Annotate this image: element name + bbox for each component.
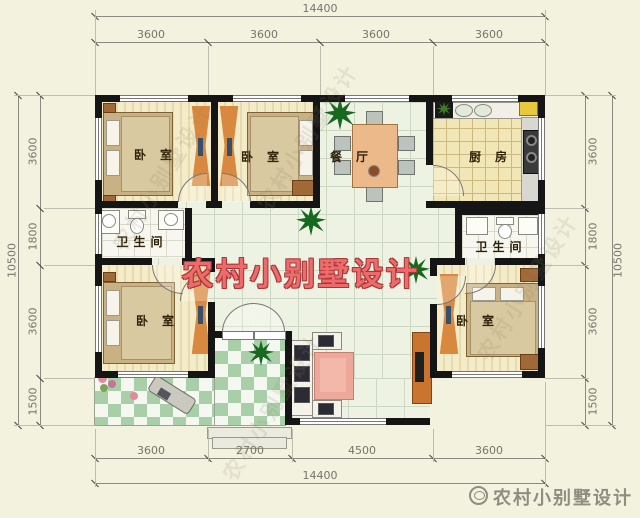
wall-bathL-bottom-a [95, 258, 152, 265]
extension-line [545, 425, 616, 426]
dim-left-total: 10500 [6, 231, 19, 291]
label-kitchen: 厨房 [455, 148, 535, 165]
bed1-pillow-a [106, 120, 120, 146]
dim-bottom-seg-1: 3600 [121, 444, 181, 457]
bed1-nightstand-a [103, 103, 116, 113]
extension-line [433, 429, 434, 462]
label-dining: 餐厅 [316, 148, 396, 165]
dim-top-total: 14400 [290, 2, 350, 15]
window-bed1-left [95, 118, 102, 180]
extension-line [545, 10, 546, 95]
dim-top-seg-3: 3600 [346, 28, 406, 41]
bathL-sink-basin [164, 213, 178, 226]
extension-line [14, 425, 95, 426]
dim-bottom-seg-4: 3600 [459, 444, 519, 457]
french-door-leaves [222, 331, 286, 340]
watermark-center: 农村小别墅设计 [182, 249, 420, 294]
living-rug-inner [320, 358, 346, 392]
wall-kitchen-left-upper [426, 102, 433, 165]
terrace-flower-4 [130, 392, 138, 400]
dim-top-seg-2: 3600 [234, 28, 294, 41]
bathR-cabinet [518, 217, 538, 235]
extension-line [44, 265, 95, 266]
dim-bottom-seg-line [95, 458, 545, 459]
window-living-bottom [300, 418, 386, 425]
dim-bottom-total: 14400 [290, 469, 350, 482]
dim-top-seg-4: 3600 [459, 28, 519, 41]
dim-left-seg-3: 3600 [27, 292, 40, 352]
extension-line [44, 378, 95, 379]
dim-bottom-seg-3: 4500 [332, 444, 392, 457]
wall-bed4-left-b [430, 304, 437, 378]
dining-chair-right-2 [398, 160, 415, 175]
dining-teapot [368, 165, 380, 177]
extension-line [14, 95, 95, 96]
dim-bottom-total-line [95, 483, 545, 484]
wall-bed4-left-a [430, 265, 437, 276]
bed3-nightstand [103, 272, 116, 282]
extension-line [208, 429, 209, 462]
dining-chair-bottom [366, 187, 383, 202]
window-kitchen-top [452, 95, 518, 102]
window-bed3-bottom [118, 371, 188, 378]
dim-top-seg-1: 3600 [121, 28, 181, 41]
dim-right-total: 10500 [612, 231, 625, 291]
extension-line [95, 10, 96, 95]
dining-chair-right-1 [398, 136, 415, 151]
window-bed4-bottom [452, 371, 522, 378]
watermark-footer: 农村小别墅设计 [493, 484, 633, 510]
wall-bathR-top [455, 208, 545, 215]
extension-line [44, 208, 95, 209]
window-kitchen-right [538, 118, 545, 180]
label-bathroom-right: 卫生间 [462, 238, 540, 255]
extension-line [433, 46, 434, 95]
bed3-pillow-a [106, 290, 120, 316]
extension-line [95, 429, 96, 487]
kitchen-sink-2 [474, 104, 492, 117]
extension-line [292, 429, 293, 462]
window-dining-top [345, 95, 409, 102]
tv [415, 352, 424, 382]
stove-burner-1 [526, 135, 537, 146]
dim-left-seg-1: 3600 [27, 122, 40, 182]
wall-bathR-bottom-a [430, 258, 465, 265]
dim-left-seg-line [40, 95, 41, 425]
wall-bed3-right-b [208, 302, 215, 378]
bathR-sink-counter [466, 217, 488, 235]
dim-top-total-line [95, 16, 545, 17]
bed1-pillow-b [106, 150, 120, 176]
sofa-seat-bottom-cushion [318, 403, 334, 415]
bathR-toilet-bowl [498, 224, 512, 239]
window-bed2-top [233, 95, 301, 102]
label-bedroom3: 卧室 [122, 312, 202, 329]
bed3-pillow-b [106, 320, 120, 346]
extension-line [545, 378, 589, 379]
extension-line [545, 95, 616, 96]
wall-kitchen-bottom [426, 201, 545, 208]
kitchen-sink-1 [455, 104, 473, 117]
dim-right-seg-1: 3600 [587, 122, 600, 182]
window-bed3-left [95, 286, 102, 352]
extension-line [545, 208, 589, 209]
floor-plan-canvas: 卧室 卧室 餐厅 厨房 卫生间 卫生间 卧室 卧室 14400 3600 360… [0, 0, 640, 518]
dim-left-seg-2: 1800 [27, 207, 40, 267]
extension-line [208, 46, 209, 95]
terrace-flower-3 [100, 384, 108, 392]
dim-right-seg-3: 3600 [587, 292, 600, 352]
bed4-dresser-b [520, 354, 540, 370]
dim-right-seg-2: 1800 [587, 207, 600, 267]
footer-logo-icon-inner [474, 491, 485, 500]
window-bed1-top [120, 95, 188, 102]
extension-line [545, 382, 546, 487]
wall-beds-bottom-b [206, 201, 222, 208]
terrace-flower-2 [108, 380, 116, 388]
